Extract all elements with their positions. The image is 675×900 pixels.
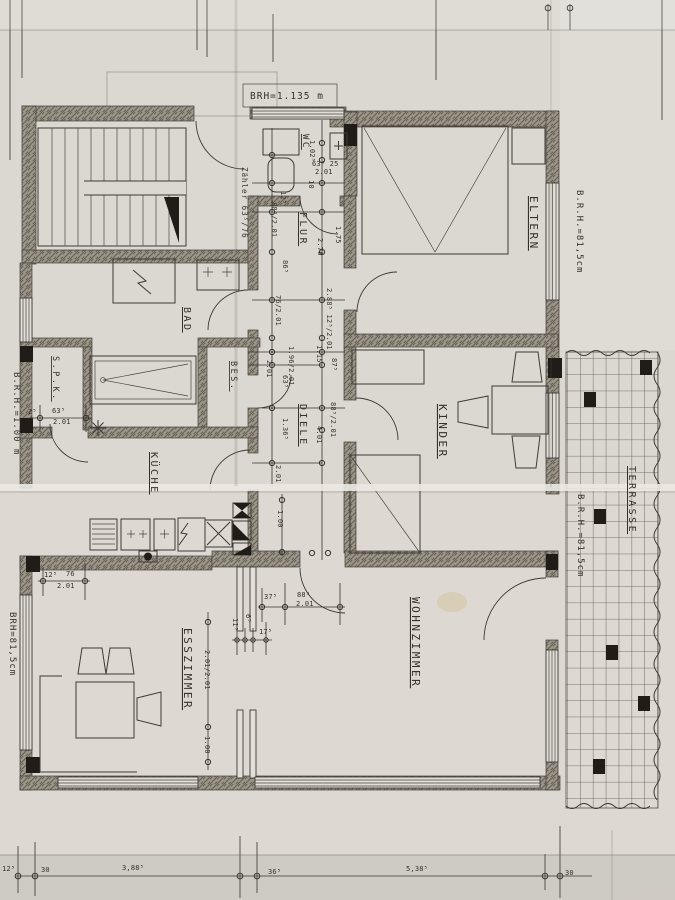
room-label-bes: BES. <box>228 361 238 391</box>
dimension-label: 1.00 <box>203 736 211 754</box>
terrace-black-tile <box>606 645 618 660</box>
terrace-black-tile <box>640 360 652 375</box>
dimension-label: 2.01 <box>57 582 75 590</box>
dimension-label: 1.75 <box>334 226 342 244</box>
dimension-label: 86⁵ <box>281 260 289 273</box>
room-label-terrasse: TERRASSE <box>626 466 637 534</box>
dimension-label: 12⁵ <box>44 571 57 579</box>
dimension-label: 30 <box>565 869 574 877</box>
room-label-kinder: KINDER <box>436 404 449 459</box>
window-bad-left <box>20 298 32 342</box>
dimension-label: 2.76 <box>316 238 324 256</box>
dimension-label: 63⁵ <box>52 407 65 415</box>
dimension-label: 2.01 <box>265 360 273 378</box>
dimension-label: 2.01 <box>274 465 282 483</box>
dimension-label: 4.01 <box>315 426 323 444</box>
dimension-label: 2.01 <box>53 418 71 426</box>
terrace-black-tile <box>638 696 650 711</box>
dimension-label: 63⁵ 25 <box>312 160 339 168</box>
dimension-label: 87⁵ <box>330 358 338 371</box>
terrace-black-tile <box>594 509 606 524</box>
room-label-flur: FLUR <box>297 212 308 246</box>
annotation-brh-right-bottom: B.R.H.=81,5cm <box>575 494 585 577</box>
dimension-label: 17⁵ <box>259 628 272 636</box>
room-label-bad: BAD <box>181 307 192 333</box>
window-esszimmer-bottom <box>58 777 198 788</box>
terrace-black-tile <box>584 392 596 407</box>
window-wohnzimmer-right <box>546 650 558 762</box>
dimension-label: 11⁵ <box>231 618 239 631</box>
annotation-zaehler: Zähler 63⁵/76 <box>240 167 249 239</box>
dimension-label: 2.01 <box>315 168 333 176</box>
dimension-label: 1.36⁵ <box>281 418 289 440</box>
dimension-label: 88⁵ <box>297 591 310 599</box>
room-label-eltern: ELTERN <box>527 196 540 251</box>
dimension-label: 37⁵ <box>264 593 277 601</box>
dimension-label: 10 <box>307 180 315 189</box>
dimension-label: 30 <box>41 866 50 874</box>
dimension-label: 2.01/2.01 <box>203 650 211 690</box>
room-label-diele: DIELE <box>297 404 308 447</box>
room-label-kueche: KÜCHE <box>148 452 161 495</box>
dimension-label: 76 <box>66 570 75 578</box>
floor-plan-drawing: WCELTERNFLURBADS.P.K.BES.DIELEKINDERKÜCH… <box>0 0 675 900</box>
floor-plan-scan: WCELTERNFLURBADS.P.K.BES.DIELEKINDERKÜCH… <box>0 0 675 900</box>
dimension-label: 2.88⁵ 12⁵/2.01 <box>325 288 333 350</box>
dimension-label: 1.02⁵ <box>308 140 316 162</box>
dimension-label: 63⁵ <box>281 375 289 388</box>
dimension-label: 12⁵ <box>279 191 287 204</box>
room-label-esszimmer: ESSZIMMER <box>181 628 194 710</box>
dimension-label: 1.15 <box>315 345 323 363</box>
dimension-label: 5,38⁵ <box>406 865 428 873</box>
annotation-brh-left-bottom: BRH=81,5cm <box>7 612 17 676</box>
window-wc-top <box>252 108 344 119</box>
room-label-wohnzimmer: WOHNZIMMER <box>409 597 422 688</box>
dimension-label: 76/2.01 <box>274 295 282 326</box>
dimension-label: 1.00 <box>276 510 284 528</box>
dimension-label: 36⁵ <box>268 868 281 876</box>
terrace <box>566 351 660 809</box>
dimension-label: 2⁵ <box>28 408 37 416</box>
dimension-label: 12⁵ <box>2 865 15 873</box>
dimension-label: 88⁵/2.01 <box>270 202 278 237</box>
annotation-brh-left: B.R.H.=1.00 m <box>11 372 21 455</box>
dimension-label: 3,88⁵ <box>122 864 144 872</box>
annotation-brh-right-top: B.R.H.=81,5cm <box>574 190 584 273</box>
dimension-label: 6⁵ <box>244 614 252 623</box>
window-esszimmer-left <box>20 595 32 750</box>
window-eltern-right <box>546 183 559 300</box>
dimension-label: 88⁵/2.01 <box>329 402 337 437</box>
room-label-spk: S.P.K. <box>50 356 60 402</box>
terrace-black-tile <box>593 759 605 774</box>
annotation-brh-top: BRH=1.135 m <box>250 91 324 102</box>
dimension-label: 2.01 <box>296 600 314 608</box>
window-wohnzimmer-bottom <box>255 777 540 788</box>
